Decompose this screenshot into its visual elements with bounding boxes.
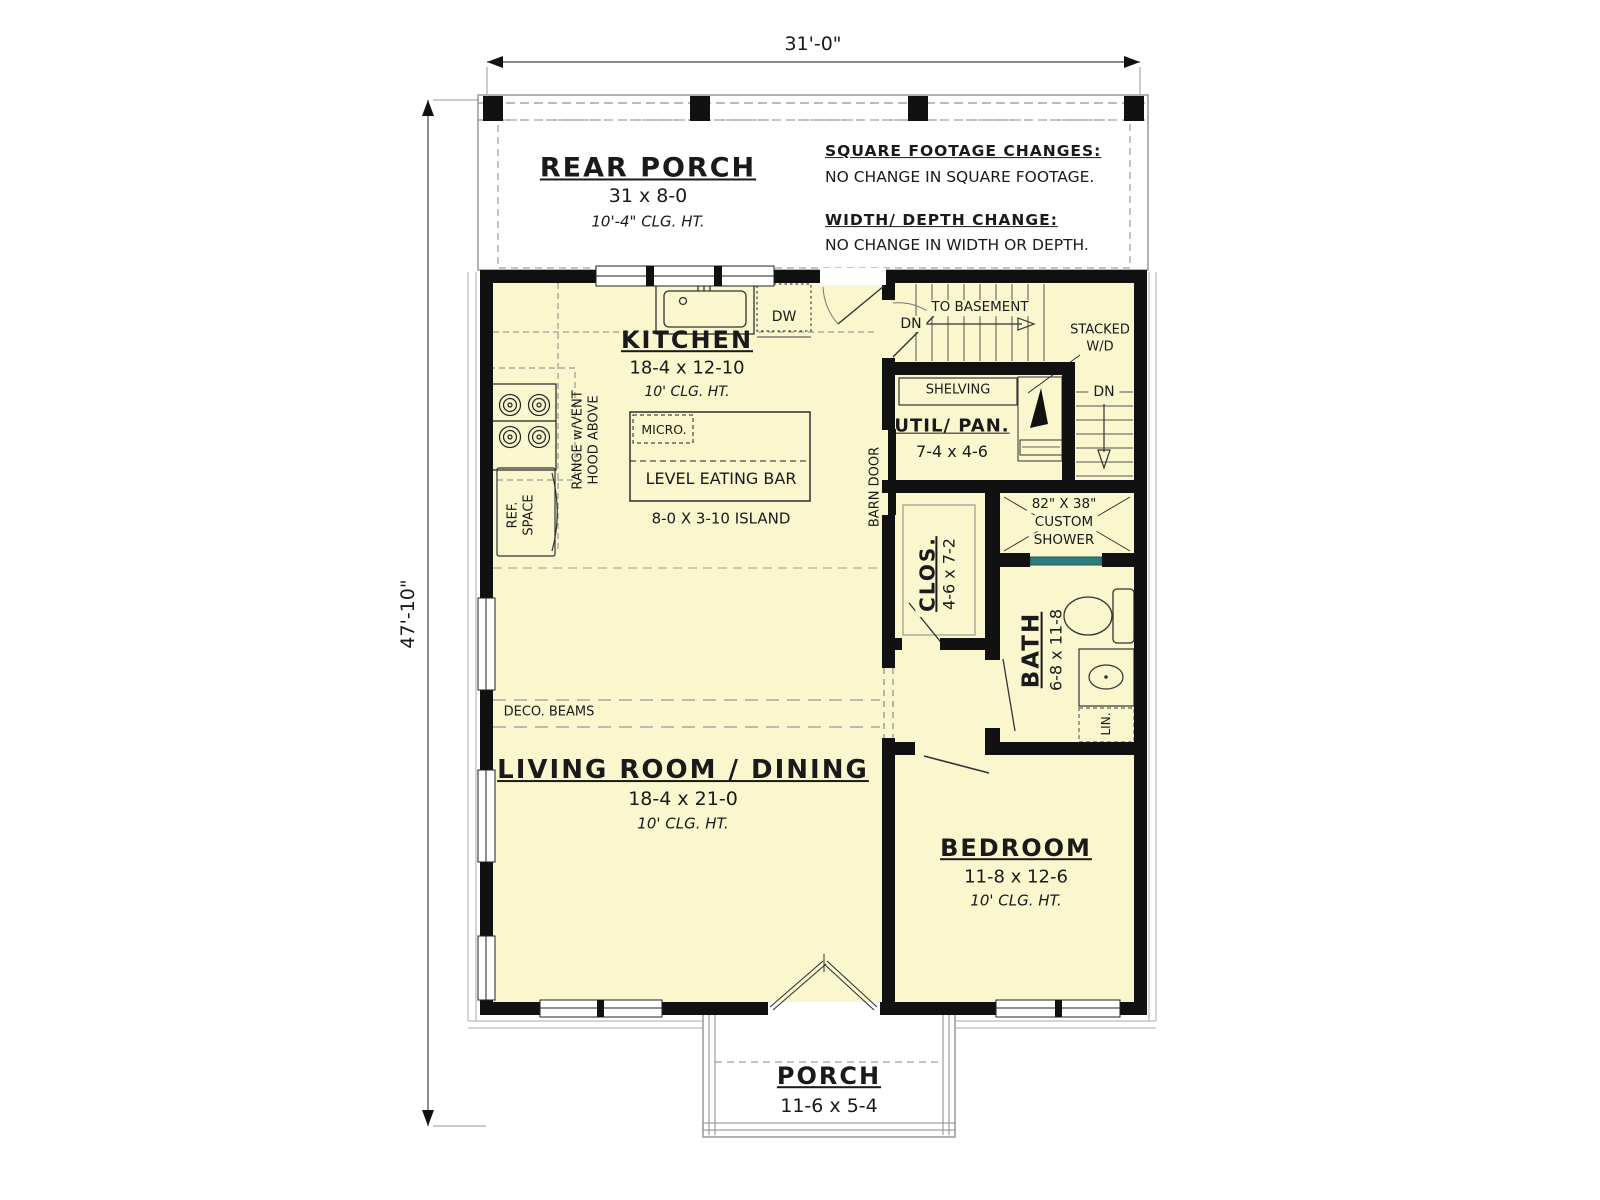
note-square-footage-title: SQUARE FOOTAGE CHANGES:	[822, 143, 1104, 161]
range-label: RANGE w/VENT HOOD ABOVE	[570, 390, 601, 489]
refrigerator-label-line1: REF.	[505, 494, 521, 535]
stair-down-left-label: DN	[895, 316, 926, 332]
shelving-label: SHELVING	[926, 384, 991, 399]
stacked-wd-label-line2: W/D	[1086, 341, 1113, 356]
dishwasher-label: DW	[772, 309, 797, 325]
utility-size: 7-4 x 4-6	[916, 443, 988, 461]
shower-glass	[1030, 557, 1102, 565]
closet-name: CLOS.	[915, 536, 939, 612]
barn-door-label: BARN DOOR	[869, 447, 884, 527]
bedroom-name: BEDROOM	[940, 835, 1092, 863]
stacked-wd-label-line1: STACKED	[1070, 324, 1130, 339]
bath-label: BATH 6-8 x 11-8	[1019, 609, 1066, 691]
deco-beams-label: DECO. BEAMS	[499, 706, 600, 721]
island-label: 8-0 X 3-10 ISLAND	[647, 510, 796, 527]
floor-plan-drawing	[0, 0, 1600, 1200]
porch-size: 11-6 x 5-4	[780, 1096, 877, 1118]
bedroom-ceiling: 10' CLG. HT.	[970, 892, 1061, 909]
linen-label: LIN.	[1100, 712, 1114, 735]
kitchen-name: KITCHEN	[621, 327, 753, 355]
to-basement-label: TO BASEMENT	[926, 300, 1033, 316]
closet-label: CLOS. 4-6 x 7-2	[915, 531, 958, 617]
utility-name: UTIL/ PAN.	[894, 417, 1009, 438]
bath-size: 6-8 x 11-8	[1046, 609, 1065, 691]
living-room-size: 18-4 x 21-0	[628, 789, 738, 811]
note-square-footage-body: NO CHANGE IN SQUARE FOOTAGE.	[822, 169, 1097, 187]
closet-size: 4-6 x 7-2	[939, 536, 958, 612]
note-width-depth-body: NO CHANGE IN WIDTH OR DEPTH.	[822, 237, 1092, 255]
shower-label-line3: SHOWER	[1029, 533, 1100, 549]
barn-door-slab	[888, 429, 896, 515]
eating-bar-label: LEVEL EATING BAR	[646, 470, 797, 488]
rear-porch-name: REAR PORCH	[540, 152, 756, 183]
range-label-line1: RANGE w/VENT	[570, 390, 586, 489]
floor-plan-sheet: 31'-0" 47'-10" REAR PORCH 31 x 8-0 10'-4…	[0, 0, 1600, 1200]
shower-label-line1: 82" X 38"	[1027, 497, 1102, 513]
living-room-name: LIVING ROOM / DINING	[497, 756, 869, 786]
refrigerator-label-line2: SPACE	[521, 494, 537, 535]
shower-label-line2: CUSTOM	[1030, 515, 1098, 531]
note-width-depth-title: WIDTH/ DEPTH CHANGE:	[822, 212, 1061, 230]
porch-name: PORCH	[777, 1063, 881, 1091]
dimension-depth-label: 47'-10"	[398, 579, 420, 648]
living-room-ceiling: 10' CLG. HT.	[637, 815, 728, 832]
range-label-line2: HOOD ABOVE	[586, 390, 602, 489]
dimension-width-label: 31'-0"	[784, 34, 841, 56]
bedroom-size: 11-8 x 12-6	[964, 868, 1068, 889]
bath-name: BATH	[1019, 609, 1047, 691]
refrigerator-label: REF. SPACE	[505, 494, 536, 535]
kitchen-ceiling: 10' CLG. HT.	[644, 384, 729, 400]
stair-down-right-label: DN	[1088, 384, 1119, 400]
microwave-label: MICRO.	[641, 423, 686, 437]
kitchen-size: 18-4 x 12-10	[629, 359, 744, 380]
rear-porch-ceiling: 10'-4" CLG. HT.	[591, 213, 704, 230]
rear-porch-size: 31 x 8-0	[609, 186, 688, 208]
